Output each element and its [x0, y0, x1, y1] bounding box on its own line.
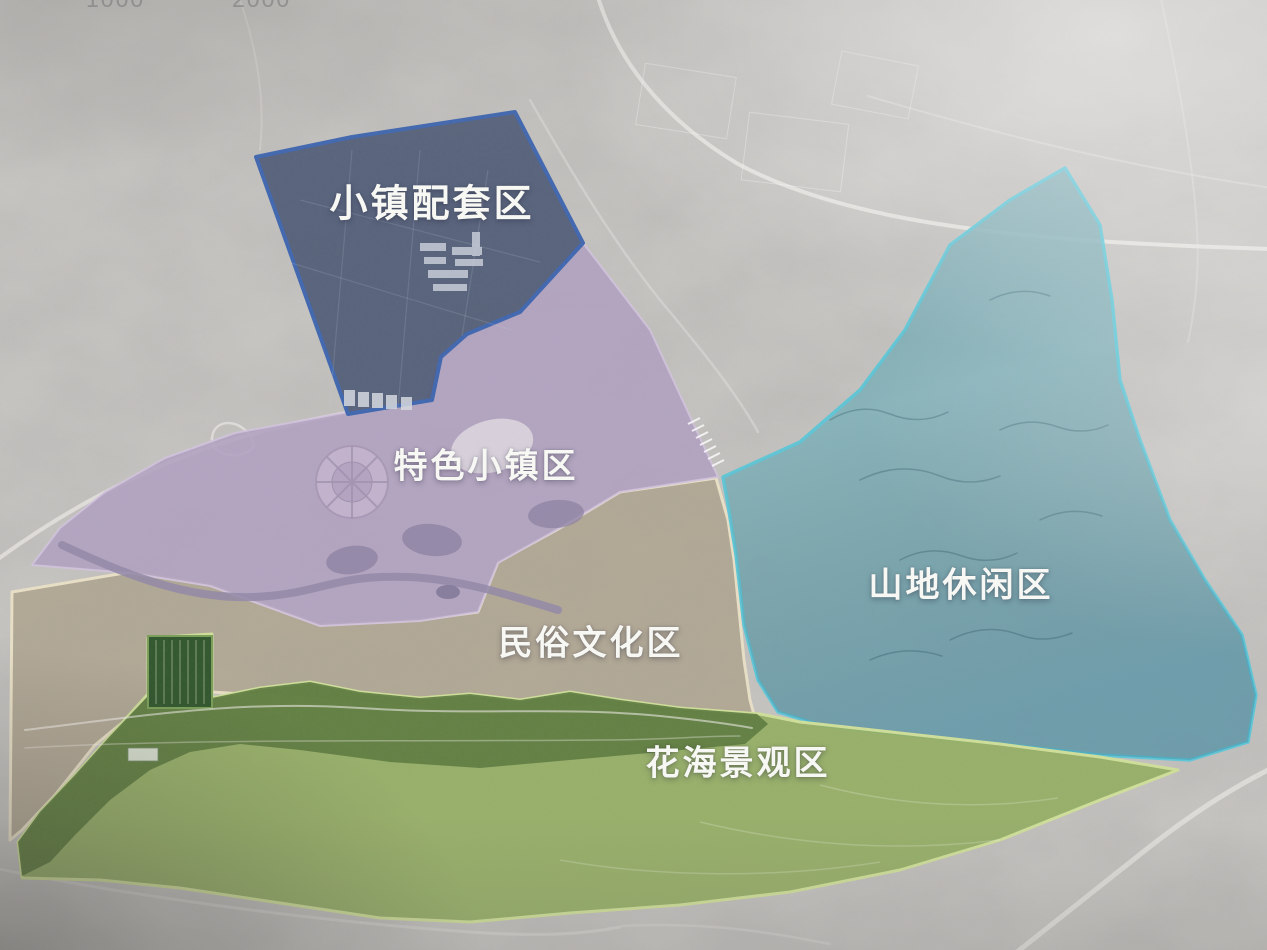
zone-label-folk-culture: 民俗文化区	[499, 616, 684, 665]
scale-label: 2000	[232, 0, 291, 13]
scale-label: 1000	[86, 0, 145, 13]
zone-label-flower-sea: 花海景观区	[646, 736, 831, 785]
zone-label-town-support: 小镇配套区	[329, 173, 534, 228]
zone-label-featured-town: 特色小镇区	[394, 439, 579, 488]
zone-label-mountain-leisure: 山地休闲区	[869, 558, 1054, 607]
map-photo: 1000 2000 小镇配套区 特色小镇区 民俗文化区 山地休闲区 花海景观区	[0, 0, 1267, 950]
map-canvas	[0, 0, 1267, 950]
photo-grain	[0, 0, 1267, 950]
